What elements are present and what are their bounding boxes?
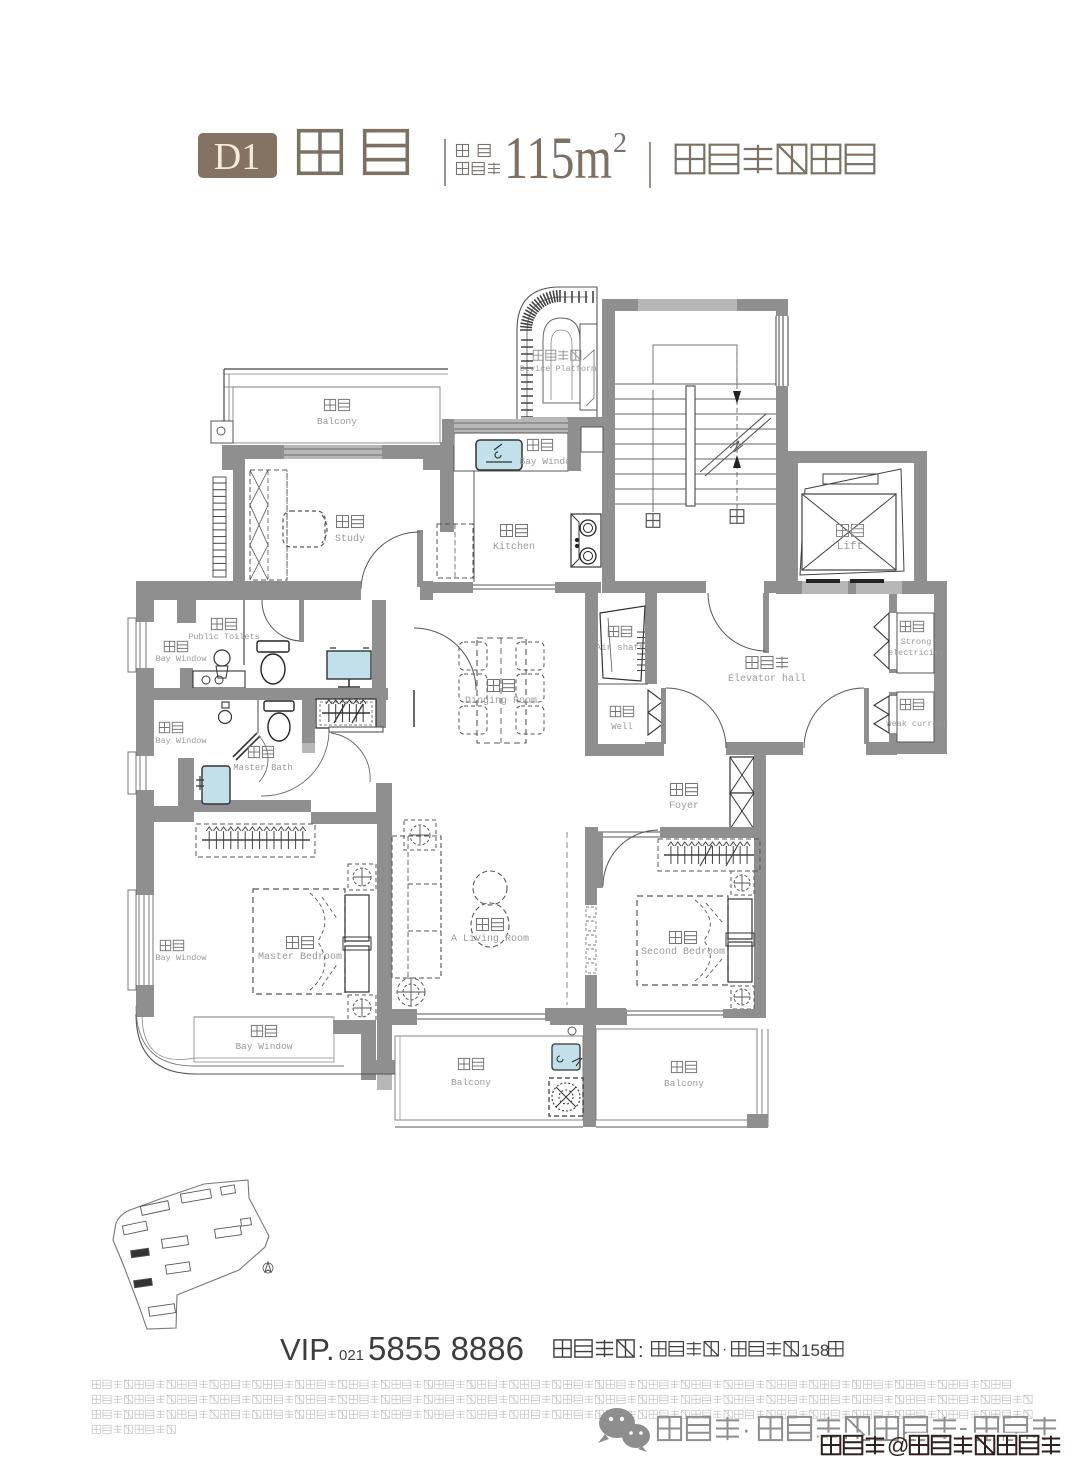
svg-text:·: · <box>742 1414 751 1444</box>
svg-text:Balcony: Balcony <box>451 1077 491 1088</box>
svg-text:·: · <box>722 1341 727 1358</box>
svg-text:Bay Window: Bay Window <box>155 654 207 664</box>
svg-text:Master Bath: Master Bath <box>233 763 292 773</box>
svg-text:Device Platform: Device Platform <box>520 364 597 374</box>
svg-text:Air shaft: Air shaft <box>596 643 645 653</box>
svg-text:Bay Window: Bay Window <box>155 736 207 746</box>
svg-text:Strong: Strong <box>901 637 932 647</box>
svg-text:Bay Window: Bay Window <box>235 1041 292 1052</box>
svg-text:Study: Study <box>335 533 365 545</box>
svg-text:Weak current: Weak current <box>886 719 947 729</box>
svg-text:A Living Room: A Living Room <box>451 933 529 945</box>
svg-text:@: @ <box>887 1433 909 1458</box>
svg-text:Foyer: Foyer <box>669 801 699 812</box>
svg-text:Public Toilets: Public Toilets <box>188 632 259 642</box>
svg-text:5855 8886: 5855 8886 <box>368 1330 524 1367</box>
svg-text:115m: 115m <box>504 125 612 191</box>
svg-text:Well: Well <box>611 722 633 732</box>
svg-text:Balcony: Balcony <box>664 1078 704 1089</box>
svg-text:2: 2 <box>613 128 627 159</box>
svg-text:Balcony: Balcony <box>317 416 357 427</box>
svg-text:Bay Window: Bay Window <box>155 953 207 963</box>
svg-text:Elevator hall: Elevator hall <box>728 673 806 685</box>
svg-text::: : <box>638 1340 644 1362</box>
svg-text:Master Bedroom: Master Bedroom <box>258 951 342 963</box>
svg-text:Lift: Lift <box>837 541 863 553</box>
svg-text:Kitchen: Kitchen <box>493 541 535 553</box>
svg-text:021: 021 <box>339 1347 364 1364</box>
svg-text:158: 158 <box>801 1341 829 1360</box>
svg-text:VIP.: VIP. <box>280 1332 335 1367</box>
svg-text:D1: D1 <box>214 136 260 178</box>
svg-text:Second Bedroom: Second Bedroom <box>641 946 725 958</box>
svg-text:electricity: electricity <box>888 648 944 658</box>
svg-text:Dinging Room: Dinging Room <box>465 695 537 707</box>
